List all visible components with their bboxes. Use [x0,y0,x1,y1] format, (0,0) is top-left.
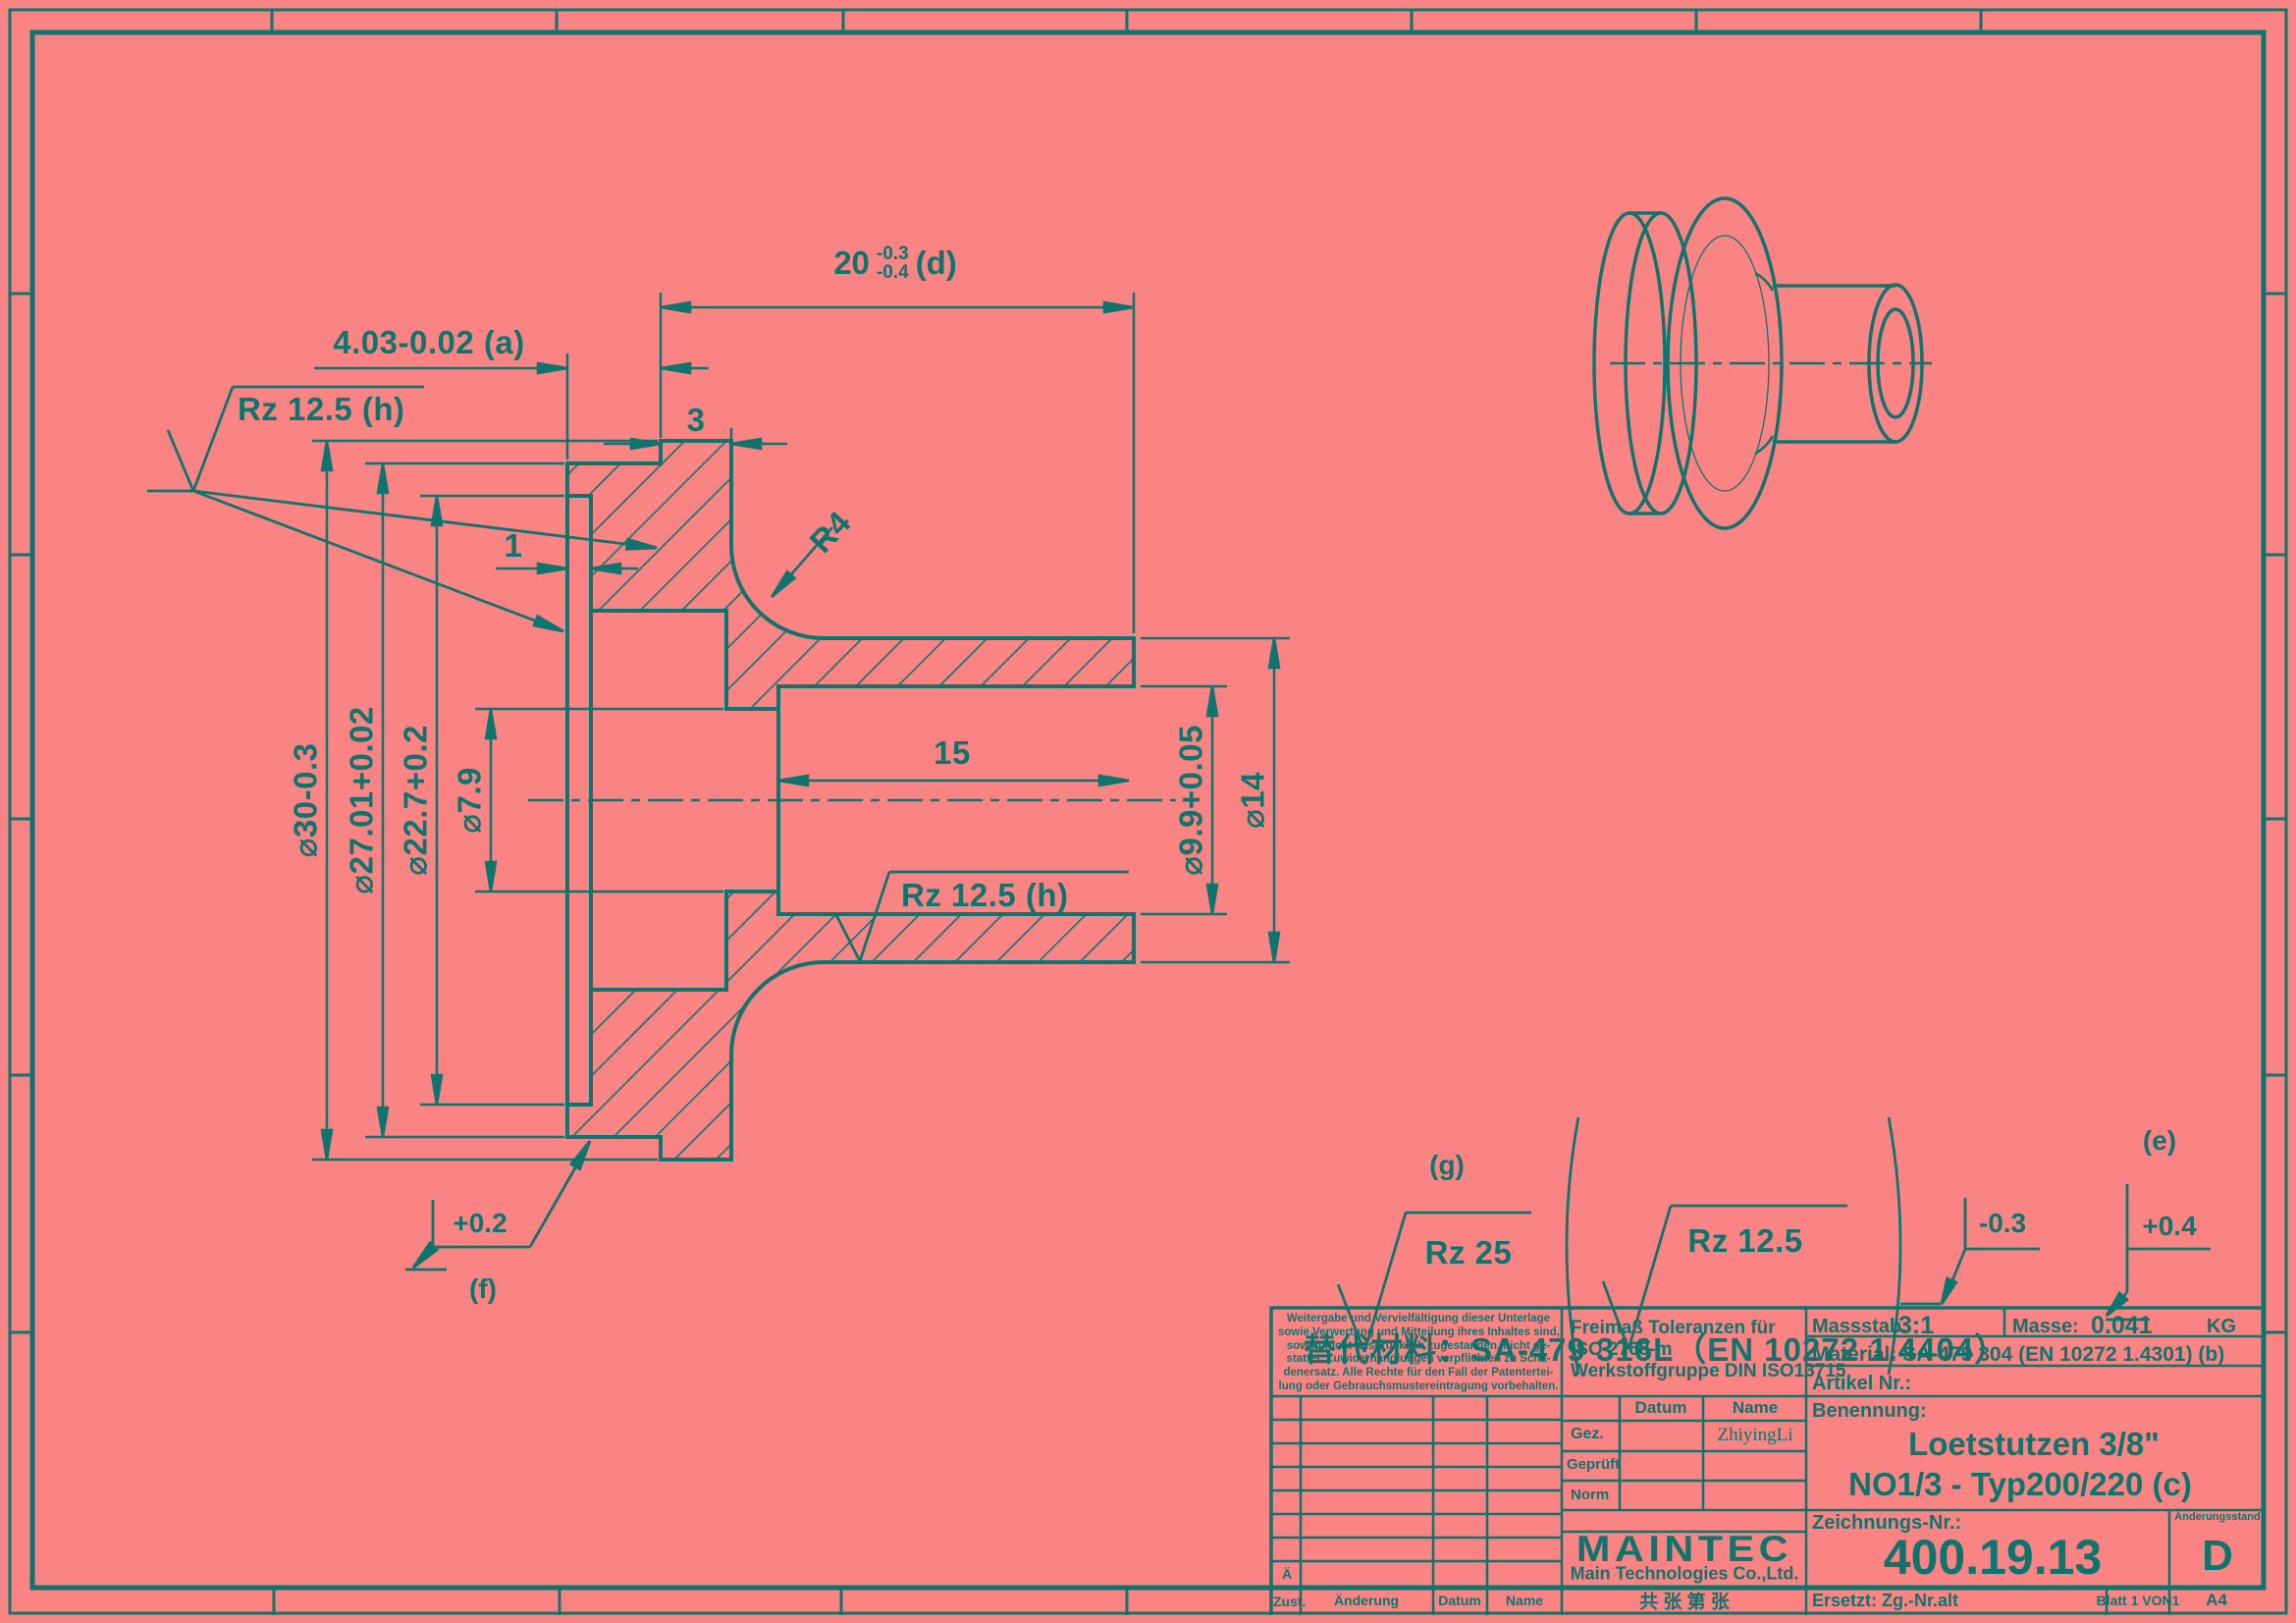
disclaimer-line: sowie Verwertung und Mitteilung ihres In… [1278,1326,1559,1340]
blatt-label: Blatt 1 VON1 [2097,1593,2180,1608]
ersetzt-label: Ersetzt: Zg.-Nr.alt [1812,1591,1958,1611]
company-cn: 共 张 第 张 [1639,1588,1730,1614]
revision-letter: D [2202,1532,2233,1581]
dim-15-label: 15 [934,734,971,772]
row-geprueft-label: Geprüft [1567,1456,1620,1473]
masse-unit: KG [2207,1316,2236,1338]
massstab-label: Massstab: [1812,1316,1908,1338]
dim-20-suffix: (d) [916,244,957,282]
disclaimer-text: Weitergabe und Vervielfältigung dieser U… [1278,1313,1559,1394]
disclaimer-line: lung oder Gebrauchsmustereintragung vorb… [1278,1380,1559,1394]
dia-27-label: ⌀27.01+0.02 [343,706,381,893]
format-label: A4 [2206,1591,2227,1610]
dim-3-label: 3 [687,402,706,439]
disclaimer-line: Weitergabe und Vervielfältigung dieser U… [1278,1313,1559,1326]
disclaimer-line: stattet. Zuwiderhandlungen verpflichten … [1278,1353,1559,1367]
dim-20-value: 20 [833,244,870,282]
dim-1-label: 1 [505,527,523,565]
iso-view [1594,198,1932,528]
zust-label: Zust. [1273,1594,1306,1609]
dia-22-label: ⌀22.7+0.2 [397,725,435,876]
rz25-label: Rz 25 [1425,1234,1513,1271]
disclaimer-line: denersatz. Alle Rechte für den Fall der … [1278,1367,1559,1380]
rz-top-left-label: Rz 12.5 (h) [238,391,405,428]
part-name-line2: NO1/3 - Typ200/220 (c) [1848,1466,2192,1503]
name-col-label: Name [1506,1593,1543,1608]
dimensions [312,293,1290,1160]
material-row: Material: SA-479 304 (EN 10272 1.4301) (… [1812,1343,2224,1367]
dim-20-label: 20 -0.3 -0.4 (d) [833,244,957,282]
edge-symbol-plus04 [2106,1184,2211,1320]
dim-20-tol-lower: -0.4 [877,263,909,282]
col-name-header: Name [1733,1398,1778,1418]
drawing-number: 400.19.13 [1884,1529,2102,1586]
dim-403-label: 4.03-0.02 (a) [333,324,524,361]
tolerance-line: Werkstoffgruppe DIN ISO13715 [1571,1361,1846,1382]
tolerance-line: Freimaß Toleranzen für [1571,1318,1846,1339]
drawing-sheet: 20 -0.3 -0.4 (d) 4.03-0.02 (a) 3 Rz 12.5… [0,0,2296,1623]
dia-30-label: ⌀30-0.3 [287,743,325,858]
row-norm-label: Norm [1571,1487,1609,1503]
col-datum-header: Datum [1635,1398,1687,1418]
dia-79-label: ⌀7.9 [451,767,489,834]
dim-20-tolerances: -0.3 -0.4 [877,244,909,282]
dia-14-label: ⌀14 [1234,772,1272,829]
dim-20-tol-upper: -0.3 [877,244,909,263]
section-upper-half [567,441,1134,709]
g-label: (g) [1429,1150,1465,1181]
f-label: (f) [469,1273,497,1305]
tolerance-line: ISO 2768-m [1571,1339,1846,1361]
section-view [528,441,1176,1160]
e-label: (e) [2143,1125,2176,1157]
row-gez-label: Gez. [1571,1426,1604,1443]
drawn-by-name: ZhiyingLi [1717,1425,1792,1446]
benennung-label: Benennung: [1812,1400,1927,1423]
plus04-label: +0.4 [2142,1211,2196,1242]
artikel-label: Artikel Nr.: [1812,1373,1911,1395]
rz-bore-label: Rz 12.5 (h) [901,877,1069,914]
part-name-line1: Loetstutzen 3/8" [1908,1426,2160,1463]
datum-col-label: Datum [1438,1593,1481,1608]
masse-value: 0.041 [2091,1312,2153,1340]
rev-ae-label: Ä [1282,1566,1292,1582]
company-name: Main Technologies Co.,Ltd. [1571,1564,1799,1585]
dia-99-label: ⌀9.9+0.05 [1172,725,1210,876]
section-lower-half [567,892,1134,1160]
masse-label: Masse: [2012,1316,2079,1338]
tolerance-note: Freimaß Toleranzen für ISO 2768-m Werkst… [1571,1318,1846,1382]
plus02-label: +0.2 [453,1208,507,1239]
disclaimer-line: soweit nicht ausdrücklich zugestanden, n… [1278,1340,1559,1354]
rz125-label: Rz 12.5 [1687,1222,1802,1260]
aenderungsstand-label: Änderungsstand [2174,1511,2260,1523]
aenderung-col-label: Änderung [1334,1593,1399,1608]
minus03-label: -0.3 [1979,1208,2026,1239]
massstab-value: 3:1 [1898,1312,1934,1340]
